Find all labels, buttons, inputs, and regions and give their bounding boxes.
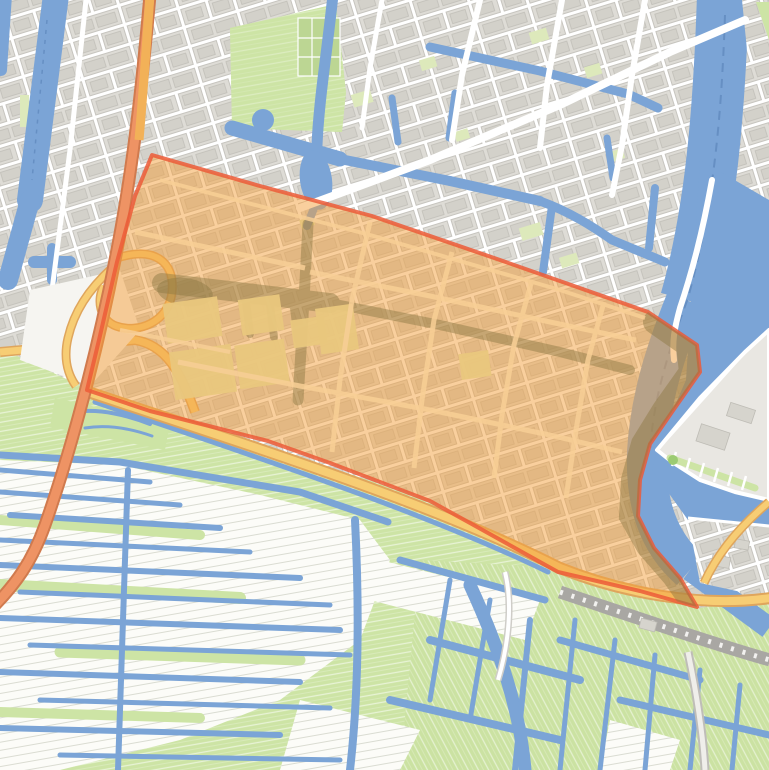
map-canvas[interactable]: [0, 0, 769, 770]
map-svg: [0, 0, 769, 770]
